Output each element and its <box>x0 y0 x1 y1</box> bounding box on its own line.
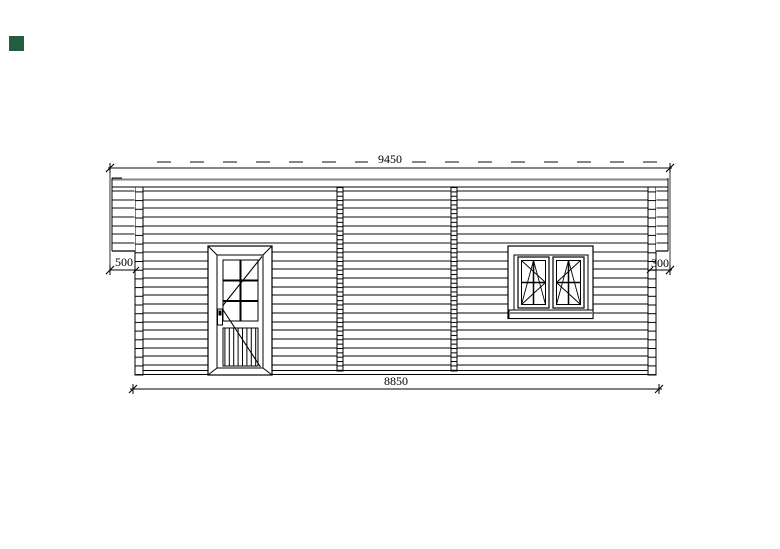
door-planks <box>223 328 258 366</box>
door-handle-knob <box>219 311 222 316</box>
corner-logs-left <box>135 187 143 375</box>
roof-overhang-right <box>656 187 668 251</box>
wall-joint-right <box>451 187 457 371</box>
elevation-drawing: 9450 <box>0 0 780 549</box>
dim-label-roof-length: 9450 <box>378 152 402 166</box>
roof-fascia <box>112 178 668 187</box>
door <box>208 246 272 375</box>
green-marker <box>9 36 24 51</box>
dim-label-left-overhang: 500 <box>115 255 133 269</box>
window-sill <box>509 310 593 319</box>
window <box>508 246 593 319</box>
dim-label-right-overhang: 300 <box>651 256 669 270</box>
window-sash-left <box>518 257 549 308</box>
drawing-page: 9450 <box>0 0 780 549</box>
dim-label-wall-length: 8850 <box>384 374 408 388</box>
wall-joint-left <box>337 187 343 371</box>
window-sash-right <box>553 257 584 308</box>
roof-overhang-left <box>112 187 135 251</box>
corner-logs-right <box>648 187 656 375</box>
